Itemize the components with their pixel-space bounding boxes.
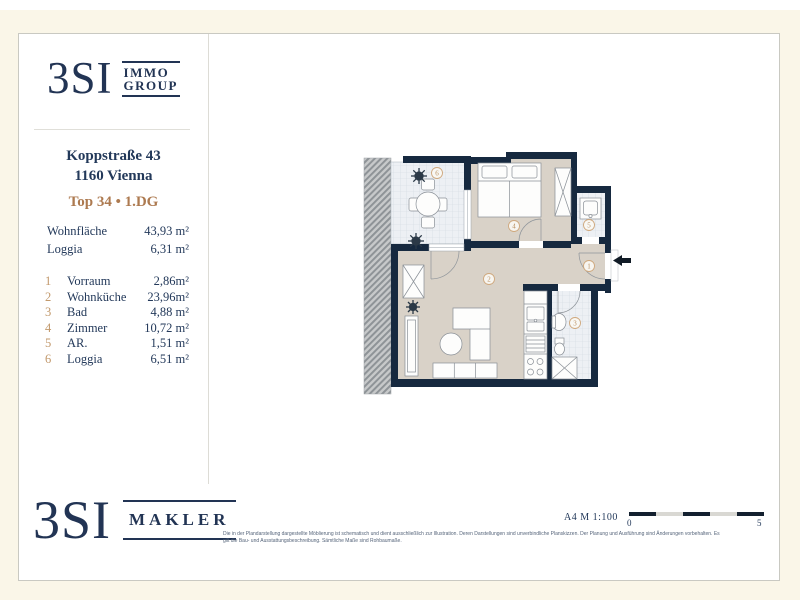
loggia-table [416, 192, 440, 216]
logo-divider-line [34, 129, 190, 130]
chair [422, 217, 435, 228]
room-area: 4,88 m² [151, 305, 189, 321]
summary-value: 43,93 m² [144, 222, 189, 240]
svg-text:3: 3 [573, 320, 577, 328]
summary-row: Loggia 6,31 m² [47, 240, 189, 258]
living-wardrobe [403, 265, 424, 298]
tv-board [405, 316, 418, 376]
summary-label: Wohnfläche [47, 222, 107, 240]
plant-icon [406, 300, 420, 314]
stove-burner [537, 359, 543, 365]
room-row: 6Loggia6,51 m² [45, 352, 189, 368]
room-name: AR. [67, 336, 151, 352]
scale-start-label: 0 [627, 518, 632, 528]
room-row: 1Vorraum2,86m² [45, 274, 189, 290]
plant-icon [408, 233, 424, 249]
logo-immo-group-text: IMMO GROUP [122, 61, 180, 97]
room-row: 2Wohnküche23,96m² [45, 290, 189, 306]
svg-text:6: 6 [435, 170, 439, 178]
floor-plan: 1 2 3 4 5 6 [361, 146, 651, 396]
scale-end-label: 5 [757, 518, 762, 528]
room-badge: 1 [584, 261, 595, 272]
room-name: Zimmer [67, 321, 144, 337]
stove-burner [528, 369, 534, 375]
logo-makler-text: MAKLER [123, 500, 236, 540]
room-row: 4Zimmer10,72 m² [45, 321, 189, 337]
sidebar-divider [208, 34, 209, 484]
svg-text:2: 2 [487, 276, 491, 284]
room-number: 5 [45, 336, 67, 352]
summary-value: 6,31 m² [151, 240, 189, 258]
room-badge: 6 [432, 168, 443, 179]
room-area: 1,51 m² [151, 336, 189, 352]
logo-3si-text: 3SI [33, 492, 111, 548]
kitchen-counter [524, 291, 547, 379]
room-number: 2 [45, 290, 67, 306]
room-name: Loggia [67, 352, 151, 368]
room-row: 3Bad4,88 m² [45, 305, 189, 321]
scale-segment [710, 512, 737, 516]
room-badge: 4 [509, 221, 520, 232]
svg-text:4: 4 [512, 223, 516, 231]
bathroom-door-gap [558, 284, 580, 291]
floorplan-document: { "colors": { "navy_brand": "#223454", "… [0, 0, 800, 600]
logo-group-line: GROUP [124, 78, 178, 93]
wardrobe [555, 168, 571, 216]
disclaimer-text: Die in der Plandarstellung dargestellte … [223, 531, 743, 545]
room-badge: 2 [484, 274, 495, 285]
scale-segment [737, 512, 764, 516]
plant-icon [411, 168, 427, 184]
scale-label: A4 M 1:100 [564, 512, 618, 523]
bedroom-door-gap [519, 241, 543, 248]
disclaimer-line: Die in der Plandarstellung dargestellte … [223, 531, 743, 538]
washing-machine [580, 198, 601, 219]
svg-text:5: 5 [587, 222, 591, 230]
shower [552, 357, 577, 379]
unit-label: Top 34 • 1.DG [19, 194, 208, 211]
room-name: Vorraum [67, 274, 154, 290]
coffee-table [440, 333, 462, 355]
kitchen-sink [527, 307, 544, 320]
logo-3si-text: 3SI [47, 56, 113, 101]
svg-text:1: 1 [587, 263, 591, 271]
room-row: 5AR.1,51 m² [45, 336, 189, 352]
room-name: Wohnküche [67, 290, 147, 306]
room-area: 23,96m² [147, 290, 189, 306]
summary-row: Wohnfläche 43,93 m² [47, 222, 189, 240]
scale-segment [683, 512, 710, 516]
area-summary: Wohnfläche 43,93 m² Loggia 6,31 m² [47, 222, 189, 258]
scale-segment [656, 512, 683, 516]
ar-door-gap [582, 237, 599, 244]
room-name: Bad [67, 305, 151, 321]
stove-burner [528, 359, 534, 365]
address-city: 1160 Vienna [19, 166, 208, 186]
sideboard [433, 363, 497, 378]
room-list: 1Vorraum2,86m² 2Wohnküche23,96m² 3Bad4,8… [45, 274, 189, 368]
top-white-strip [0, 0, 800, 10]
address-street: Koppstraße 43 [19, 146, 208, 166]
room-number: 1 [45, 274, 67, 290]
bed [478, 163, 541, 217]
makler-logo: 3SI MAKLER [33, 492, 236, 548]
scale-bar [629, 512, 764, 517]
room-area: 10,72 m² [144, 321, 189, 337]
room-area: 6,51 m² [151, 352, 189, 368]
entrance-door-gap [605, 253, 611, 279]
room-number: 6 [45, 352, 67, 368]
stove-burner [537, 369, 543, 375]
room-number: 3 [45, 305, 67, 321]
immo-group-logo: 3SI IMMO GROUP [19, 56, 208, 101]
property-address: Koppstraße 43 1160 Vienna [19, 146, 208, 186]
roof-hatch-area [364, 158, 391, 394]
room-badge: 5 [584, 220, 595, 231]
toilet [555, 338, 565, 355]
plan-sheet: 3SI IMMO GROUP Koppstraße 43 1160 Vienna… [18, 33, 780, 581]
room-badge: 3 [570, 318, 581, 329]
disclaimer-line: gilt die Bau- und Ausstattungsbeschreibu… [223, 538, 743, 545]
room-number: 4 [45, 321, 67, 337]
scale-segment [629, 512, 656, 516]
summary-label: Loggia [47, 240, 82, 258]
room-area: 2,86m² [154, 274, 189, 290]
entrance-threshold [611, 250, 618, 281]
